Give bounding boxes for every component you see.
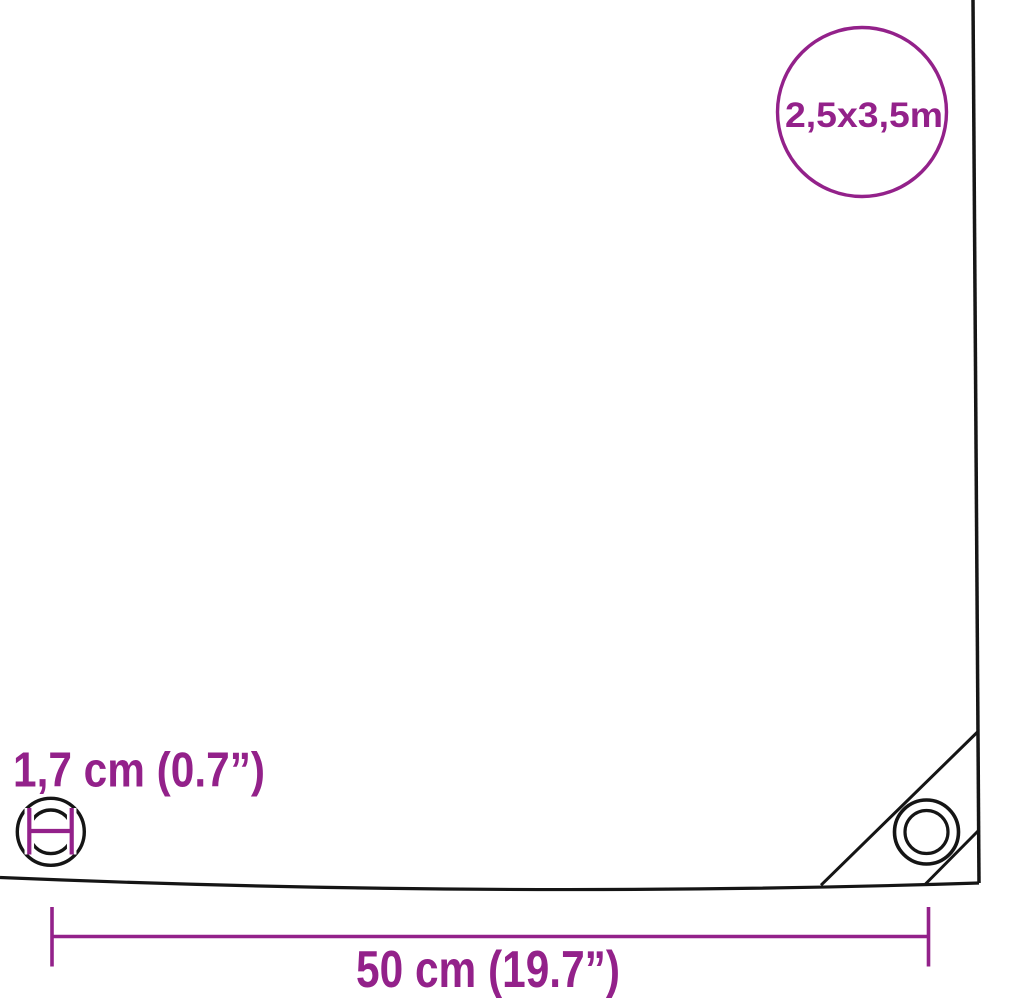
- svg-text:50 cm (19.7”): 50 cm (19.7”): [356, 941, 620, 999]
- svg-text:2,5x3,5m: 2,5x3,5m: [785, 96, 943, 135]
- svg-text:1,7 cm (0.7”): 1,7 cm (0.7”): [13, 744, 265, 798]
